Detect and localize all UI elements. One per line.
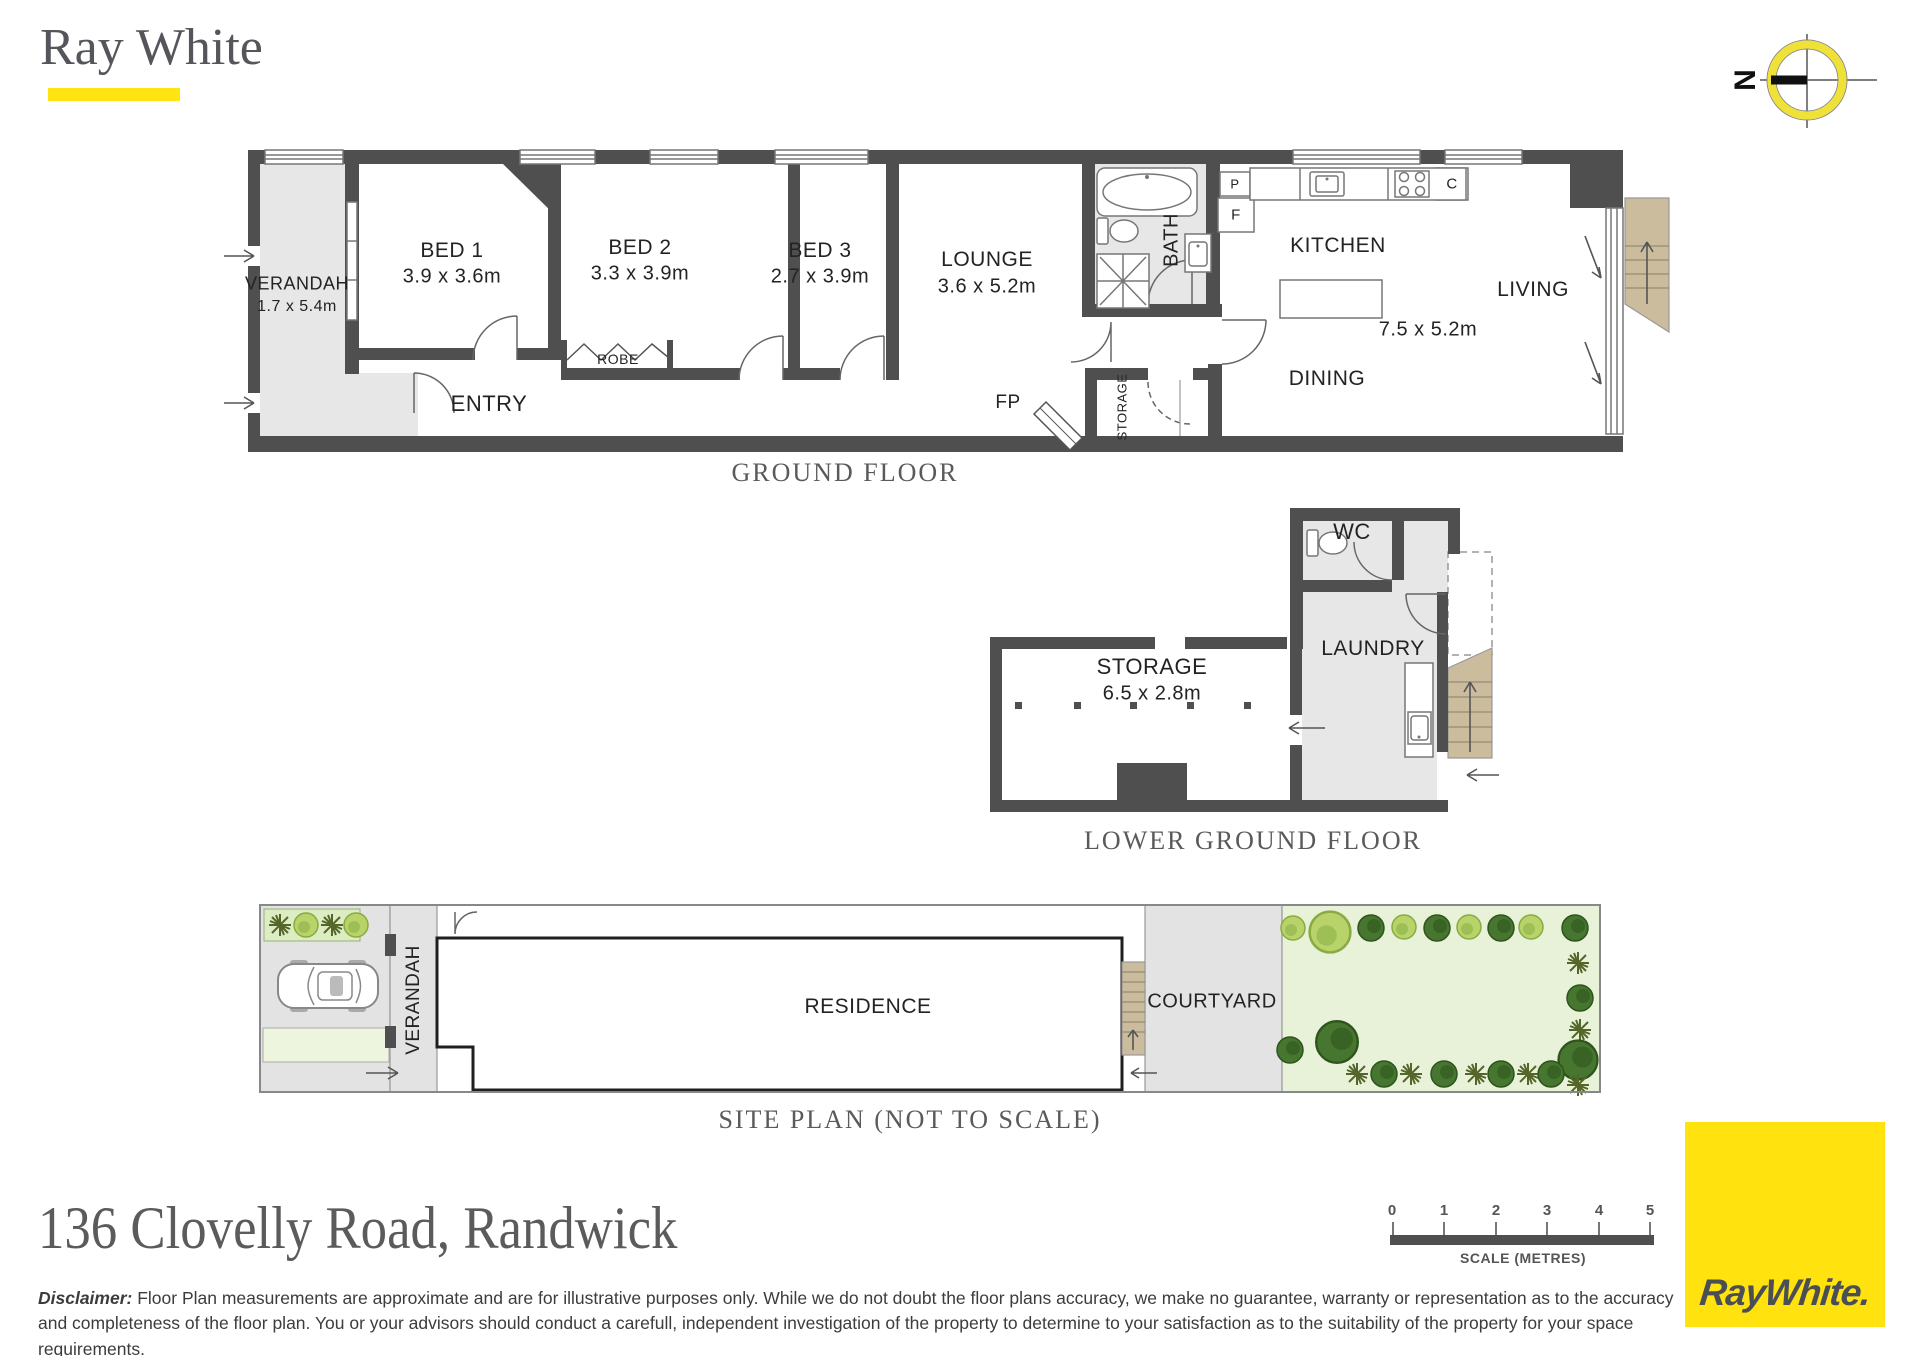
car-icon (278, 960, 378, 1012)
plant-icon (321, 914, 343, 936)
sliding-door (1585, 208, 1623, 434)
room-label-living: LIVING (1497, 278, 1569, 302)
ground-floor-plan (218, 146, 1672, 456)
bathtub-icon (1097, 168, 1197, 216)
room-label-bed3: BED 3 (788, 239, 851, 263)
room-label-fp: FP (995, 392, 1020, 414)
entry-arrow (224, 397, 254, 409)
lower-ground-floor-plan (985, 500, 1505, 820)
stairs-icon (1625, 198, 1669, 332)
scale-tick-0: 0 (1388, 1202, 1396, 1219)
room-dims-living-area: 7.5 x 5.2m (1379, 319, 1477, 342)
site-plan-title: SITE PLAN (NOT TO SCALE) (718, 1105, 1101, 1135)
room-label-bath: BATH (1161, 213, 1184, 267)
bush-icon (294, 913, 318, 937)
scale-tick-1: 1 (1440, 1202, 1448, 1219)
scale-tick-2: 2 (1492, 1202, 1500, 1219)
kitchen-bench (1250, 168, 1466, 200)
room-label-entry: ENTRY (451, 391, 528, 417)
entry-arrow (224, 250, 254, 262)
room-label-storage-gf: STORAGE (1115, 374, 1130, 441)
room-label-wc: WC (1333, 519, 1371, 545)
brand-yellow-underline (48, 88, 180, 101)
compass-north-label: N (1729, 69, 1763, 91)
steps-icon (1122, 962, 1145, 1055)
scale-bar-caption: SCALE (METRES) (1460, 1250, 1586, 1266)
property-address: 136 Clovelly Road, Randwick (38, 1194, 677, 1263)
stairs-icon (1448, 648, 1492, 758)
room-dims-bed2: 3.3 x 3.9m (591, 263, 689, 286)
bush-icon (344, 913, 368, 937)
scale-tick-4: 4 (1595, 1202, 1603, 1219)
residence-outline (437, 938, 1122, 1090)
scale-bar: 0 1 2 3 4 5 SCALE (METRES) (1392, 1202, 1654, 1272)
disclaimer-text: Disclaimer: Floor Plan measurements are … (38, 1286, 1678, 1356)
room-dims-verandah: 1.7 x 5.4m (257, 298, 337, 316)
ray-white-logo-text: RayWhite. (1698, 1272, 1872, 1314)
floorplan-page: Ray White N (0, 0, 1920, 1356)
room-label-bed2: BED 2 (608, 236, 671, 260)
brand-logo-text: Ray White (40, 18, 263, 77)
room-label-storage-lgf: STORAGE (1097, 654, 1208, 680)
shower-icon (1097, 254, 1149, 308)
sink-icon (1310, 172, 1344, 196)
room-label-kitchen: KITCHEN (1290, 234, 1386, 258)
ground-floor-title: GROUND FLOOR (732, 458, 959, 488)
island-bench (1280, 280, 1382, 318)
room-label-robe: ROBE (597, 351, 639, 367)
garden-bed (264, 909, 368, 941)
scale-tick-5: 5 (1646, 1202, 1654, 1219)
room-label-laundry: LAUNDRY (1321, 637, 1424, 661)
gate-arc (455, 912, 477, 934)
room-label-bed1: BED 1 (420, 239, 483, 263)
room-dims-lounge: 3.6 x 5.2m (938, 276, 1036, 299)
room-label-verandah: VERANDAH (245, 274, 349, 295)
ray-white-logo: RayWhite. (1685, 1122, 1885, 1327)
label-fridge: F (1231, 207, 1241, 224)
site-label-residence: RESIDENCE (804, 995, 931, 1019)
label-pantry: P (1230, 177, 1239, 192)
vanity-icon (1185, 234, 1211, 272)
room-dims-bed3: 2.7 x 3.9m (771, 266, 869, 289)
stair-void (1448, 552, 1492, 655)
room-label-dining: DINING (1289, 367, 1366, 391)
laundry-sink-icon (1405, 663, 1433, 757)
room-dims-bed1: 3.9 x 3.6m (403, 266, 501, 289)
room-label-lounge: LOUNGE (941, 248, 1033, 272)
site-label-courtyard: COURTYARD (1147, 991, 1276, 1014)
scale-bar-line (1390, 1235, 1654, 1245)
plant-icon (269, 914, 291, 936)
label-cooker: C (1446, 176, 1457, 193)
toilet-icon (1097, 218, 1138, 244)
disclaimer-label: Disclaimer: (38, 1288, 132, 1308)
site-label-verandah: VERANDAH (403, 945, 425, 1055)
cooktop-icon (1395, 171, 1429, 197)
room-dims-storage-lgf: 6.5 x 2.8m (1103, 683, 1201, 706)
lower-ground-floor-title: LOWER GROUND FLOOR (1084, 826, 1422, 856)
scale-tick-3: 3 (1543, 1202, 1551, 1219)
entry-arrow (1467, 769, 1499, 781)
